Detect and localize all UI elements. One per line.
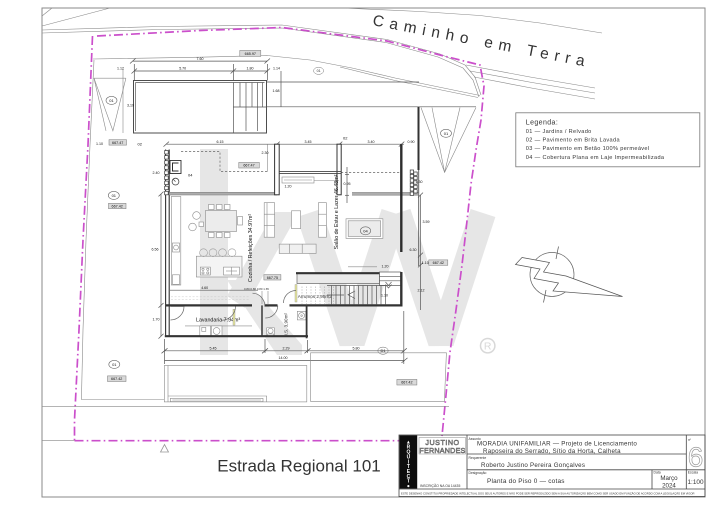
svg-text:Março: Março	[660, 475, 678, 482]
svg-text:1.68: 1.68	[273, 89, 280, 93]
svg-text:04 — Cobertura Plana em Laje I: 04 — Cobertura Plana em Laje Impermeabil…	[526, 155, 665, 161]
svg-text:Legenda:: Legenda:	[526, 120, 558, 127]
svg-text:03 — Pavimento em Betão 100% p: 03 — Pavimento em Betão 100% permeável	[526, 146, 650, 152]
svg-text:1.20: 1.20	[382, 264, 389, 268]
svg-text:1.14: 1.14	[273, 67, 280, 71]
svg-text:3.40: 3.40	[368, 140, 375, 144]
svg-text:1.10: 1.10	[381, 294, 388, 298]
svg-text:6.56: 6.56	[152, 248, 159, 252]
svg-text:01: 01	[109, 98, 114, 103]
svg-text:3.59: 3.59	[423, 220, 430, 224]
svg-text:4.60: 4.60	[201, 286, 208, 290]
svg-text:2.12: 2.12	[418, 289, 425, 293]
svg-text:6.30: 6.30	[410, 248, 417, 252]
svg-text:MORADIA UNIFAMILIAR — Projeto: MORADIA UNIFAMILIAR — Projeto de Licenci…	[477, 441, 637, 448]
svg-text:14.00: 14.00	[279, 356, 288, 360]
svg-text:1.12: 1.12	[117, 67, 124, 71]
svg-text:3,19: 3,19	[127, 104, 134, 108]
svg-text:Designação: Designação	[469, 471, 487, 475]
svg-text:Planta do Piso 0 — cotas: Planta do Piso 0 — cotas	[487, 478, 565, 485]
svg-text:01: 01	[112, 193, 117, 198]
svg-text:Cozinha / Refeições 34.97m²: Cozinha / Refeições 34.97m²	[248, 214, 254, 283]
svg-text:2.40: 2.40	[153, 171, 160, 175]
svg-text:Estrada Regional 101: Estrada Regional 101	[217, 457, 381, 476]
svg-text:1.80: 1.80	[247, 67, 254, 71]
svg-text:0.80 0.80 0.80 1.65: 0.80 0.80 0.80 1.65	[244, 287, 269, 291]
svg-text:665.97: 665.97	[245, 52, 256, 56]
svg-text:2024: 2024	[662, 482, 676, 489]
svg-text:667.42: 667.42	[111, 377, 122, 381]
svg-text:D1: D1	[380, 348, 386, 353]
svg-text:01: 01	[317, 69, 321, 73]
svg-text:04: 04	[363, 228, 368, 233]
svg-text:1:100: 1:100	[688, 479, 704, 486]
svg-text:1.10: 1.10	[422, 261, 429, 265]
svg-text:02: 02	[138, 141, 143, 146]
svg-text:01: 01	[112, 362, 117, 367]
svg-text:01: 01	[444, 131, 449, 136]
svg-text:Requerente: Requerente	[469, 456, 487, 460]
svg-text:01 — Jardins / Relvado: 01 — Jardins / Relvado	[526, 129, 592, 135]
svg-text:1.30: 1.30	[416, 180, 423, 184]
svg-text:5.80: 5.80	[353, 346, 360, 350]
svg-text:FERNANDES: FERNANDES	[419, 446, 465, 455]
svg-text:2.29: 2.29	[283, 346, 290, 350]
svg-text:1.20: 1.20	[285, 185, 292, 189]
svg-text:●: ●	[407, 483, 410, 489]
svg-text:667.42: 667.42	[112, 205, 123, 209]
svg-text:1.70: 1.70	[153, 318, 160, 322]
svg-text:INSCRIÇÃO NA OA 14435: INSCRIÇÃO NA OA 14435	[420, 483, 460, 488]
svg-text:5.45: 5.45	[210, 346, 217, 350]
svg-text:02 — Pavimento em Brita Lavada: 02 — Pavimento em Brita Lavada	[526, 138, 621, 144]
svg-text:667.47: 667.47	[243, 164, 254, 168]
svg-text:Roberto Justino Pereira Gonçal: Roberto Justino Pereira Gonçalves	[481, 462, 585, 469]
svg-text:Raposeira do Serrado, Sítio da: Raposeira do Serrado, Sítio da Horta, Ca…	[483, 448, 621, 455]
svg-text:1.10: 1.10	[96, 142, 103, 146]
svg-text:667.42: 667.42	[433, 261, 444, 265]
svg-text:667.42: 667.42	[401, 381, 412, 385]
svg-text:667.75: 667.75	[267, 276, 278, 280]
svg-text:02: 02	[343, 136, 348, 141]
svg-text:I.S. 3,90m²: I.S. 3,90m²	[284, 313, 289, 336]
svg-text:667.47: 667.47	[112, 141, 123, 145]
svg-text:Salão de Estar e Lazer 46.48m²: Salão de Estar e Lazer 46.48m²	[334, 174, 340, 249]
svg-text:04: 04	[188, 173, 193, 178]
svg-text:7.60: 7.60	[197, 57, 204, 61]
svg-text:R: R	[484, 341, 492, 353]
svg-text:Arrumos 2.95m2: Arrumos 2.95m2	[298, 294, 332, 299]
svg-text:5.70: 5.70	[179, 67, 186, 71]
svg-text:6: 6	[688, 442, 704, 473]
svg-text:2.30: 2.30	[262, 151, 269, 155]
svg-text:3.45: 3.45	[305, 140, 312, 144]
svg-text:0.90: 0.90	[408, 140, 415, 144]
svg-text:6.15: 6.15	[217, 140, 224, 144]
